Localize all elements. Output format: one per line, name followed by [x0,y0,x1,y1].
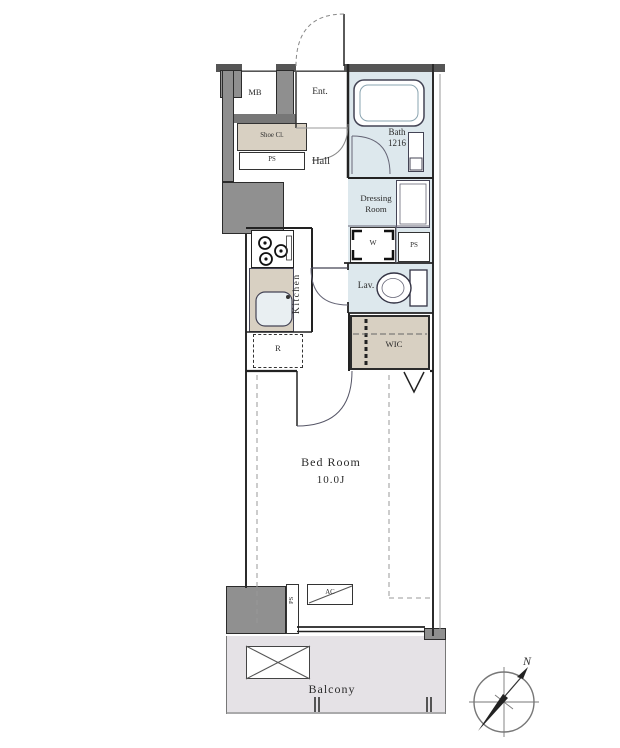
lavatory-label: Lav. [349,281,383,292]
ac-label: AC [307,589,353,597]
entrance-door-gap [296,64,344,71]
ps-bedroom-label: PS [288,588,295,612]
mb-bottom-wall [234,114,296,123]
ps-dressing-label: PS [398,241,430,249]
refrigerator-label: R [253,344,303,354]
dressing-room-label-1: Dressing [340,193,412,203]
bedroom-size-label: 10.0J [271,474,391,487]
washer-label: W [350,239,396,248]
floor-plan: N MB Ent. Shoe Cl. PS Hall Bath 1216 Dre… [0,0,620,748]
kitchen-counter [249,268,294,332]
wic-label: WIC [366,339,422,349]
bedroom-label: Bed Room [271,456,391,470]
shoe-closet-label: Shoe Cl. [237,132,307,140]
shaft-block-lower [226,586,286,634]
balcony-label: Balcony [272,683,392,697]
mb-label: MB [234,88,276,98]
kitchen-label: Kitchen [292,252,303,336]
dressing-room-label-2: Room [340,204,412,214]
bath-label: Bath [365,127,429,137]
entrance-label: Ent. [296,87,344,98]
evacuation-hatch [246,646,310,679]
shaft-block-upper [222,182,284,234]
top-wall-gap-left [242,64,276,71]
pillar-bottom-right [424,628,446,640]
compass: N [469,654,539,737]
stove-unit [251,230,294,268]
pillar-mb-right [276,70,294,118]
bath-size-label: 1216 [365,138,429,148]
north-label: N [522,654,532,668]
left-wall-upper [222,70,234,182]
hall-label: Hall [296,156,346,168]
